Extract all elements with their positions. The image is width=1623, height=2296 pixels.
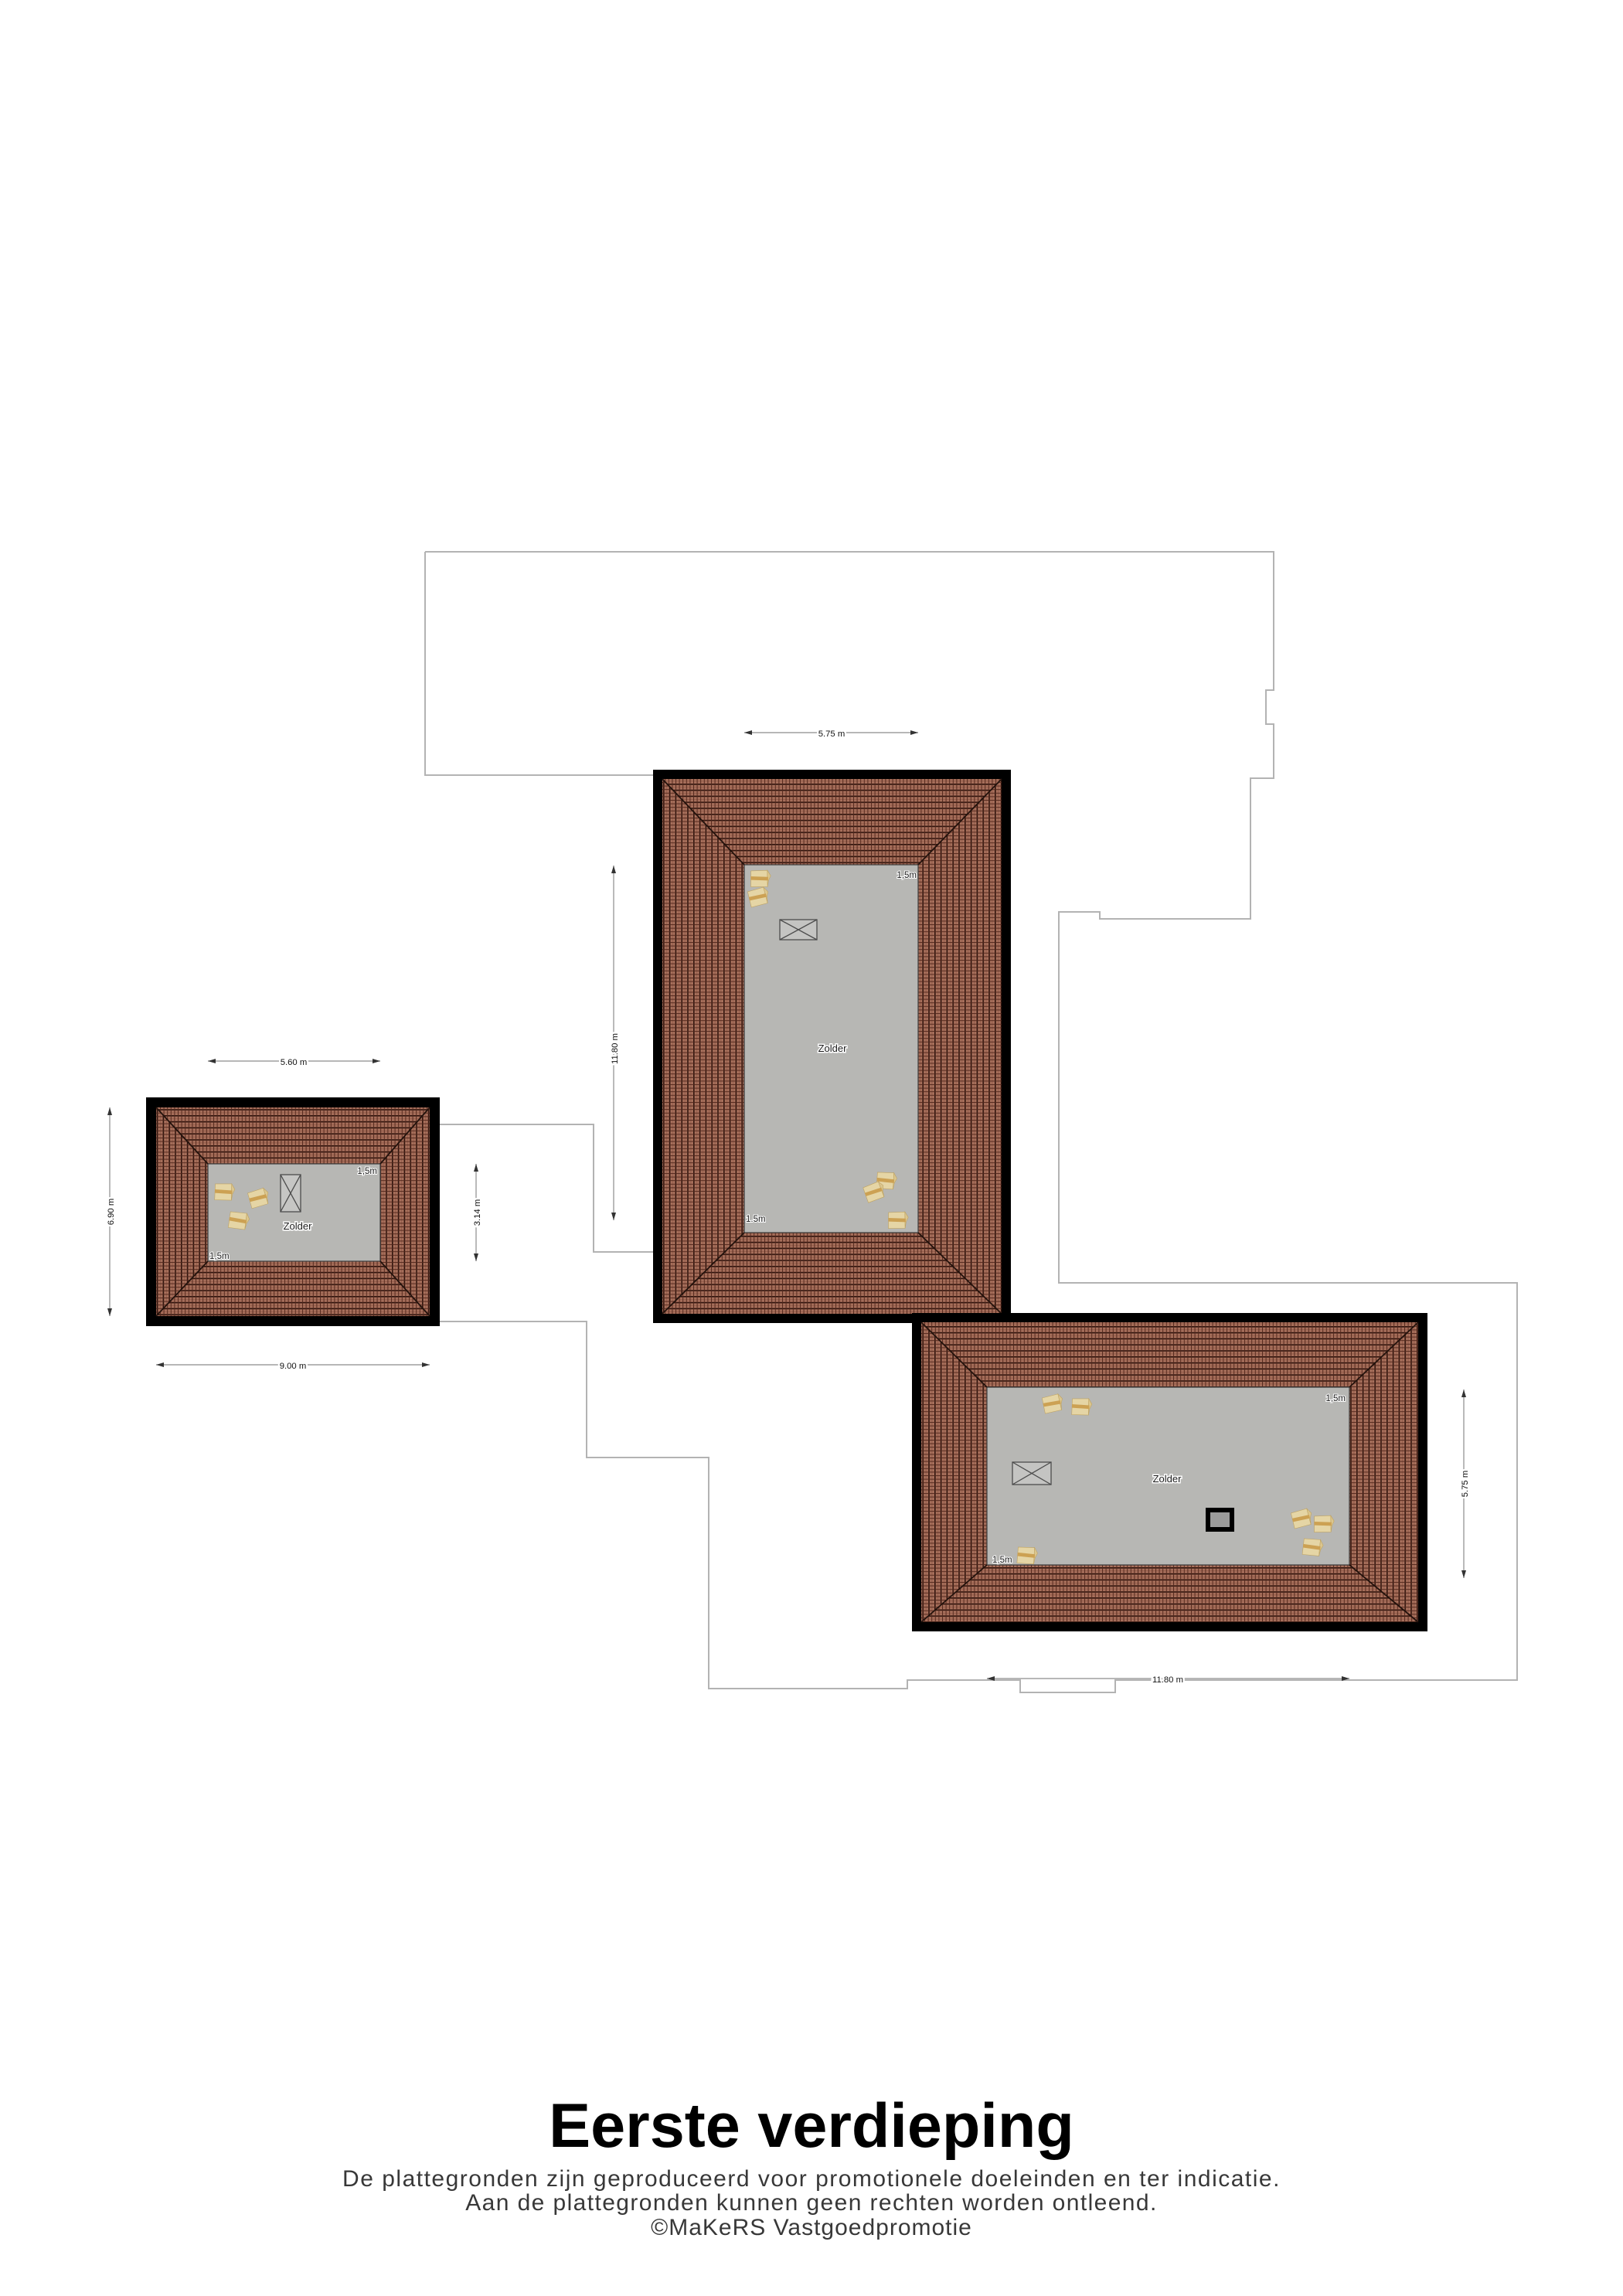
svg-text:1,5m: 1,5m [897,871,917,880]
svg-text:De plattegronden zijn geproduc: De plattegronden zijn geproduceerd voor … [342,2166,1281,2192]
svg-text:11.80 m: 11.80 m [611,1033,620,1064]
svg-text:1,5m: 1,5m [357,1167,377,1176]
svg-text:5.75 m: 5.75 m [818,730,846,739]
svg-text:9.00 m: 9.00 m [280,1362,307,1371]
svg-text:©MaKeRS Vastgoedpromotie: ©MaKeRS Vastgoedpromotie [651,2215,972,2240]
svg-text:1,5m: 1,5m [992,1556,1012,1565]
svg-text:1,5m: 1,5m [1325,1394,1346,1403]
svg-text:6.90 m: 6.90 m [107,1199,116,1226]
svg-text:Eerste verdieping: Eerste verdieping [549,2091,1074,2161]
svg-text:5.60 m: 5.60 m [281,1058,308,1067]
svg-text:Zolder: Zolder [1153,1473,1182,1485]
svg-text:1.5m: 1.5m [746,1215,766,1224]
svg-text:1,5m: 1,5m [209,1252,230,1261]
svg-text:3.14 m: 3.14 m [473,1199,482,1226]
svg-text:11.80 m: 11.80 m [1152,1675,1183,1685]
svg-text:Zolder: Zolder [818,1043,848,1054]
svg-text:Aan de plattegronden kunnen ge: Aan de plattegronden kunnen geen rechten… [465,2190,1157,2216]
svg-text:5.75 m: 5.75 m [1461,1471,1470,1498]
svg-text:Zolder: Zolder [284,1220,313,1232]
